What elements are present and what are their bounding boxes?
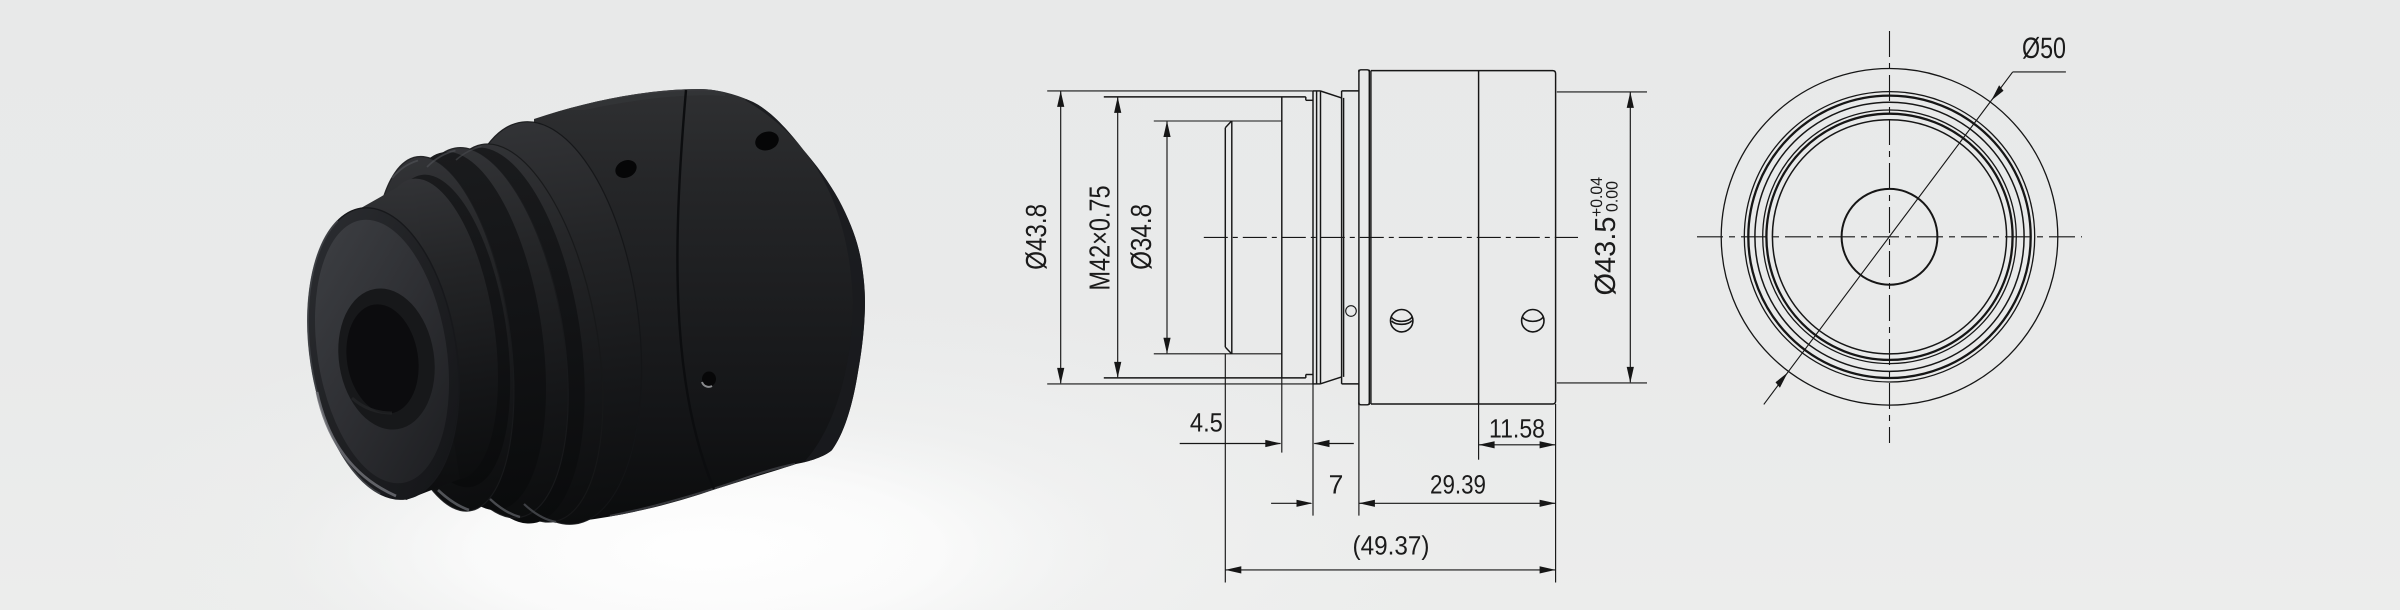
svg-text:29.39: 29.39 — [1430, 470, 1486, 500]
svg-text:(49.37): (49.37) — [1353, 531, 1430, 561]
svg-text:11.58: 11.58 — [1489, 414, 1545, 444]
svg-text:0.00: 0.00 — [1604, 181, 1622, 212]
svg-text:4.5: 4.5 — [1190, 408, 1223, 438]
svg-text:Ø50: Ø50 — [2022, 32, 2066, 65]
svg-text:Ø34.8: Ø34.8 — [1126, 204, 1158, 270]
svg-text:7: 7 — [1329, 470, 1344, 500]
svg-text:Ø43.8: Ø43.8 — [1021, 204, 1053, 270]
svg-text:Ø43.5: Ø43.5 — [1590, 217, 1622, 296]
svg-text:M42×0.75: M42×0.75 — [1085, 186, 1117, 291]
